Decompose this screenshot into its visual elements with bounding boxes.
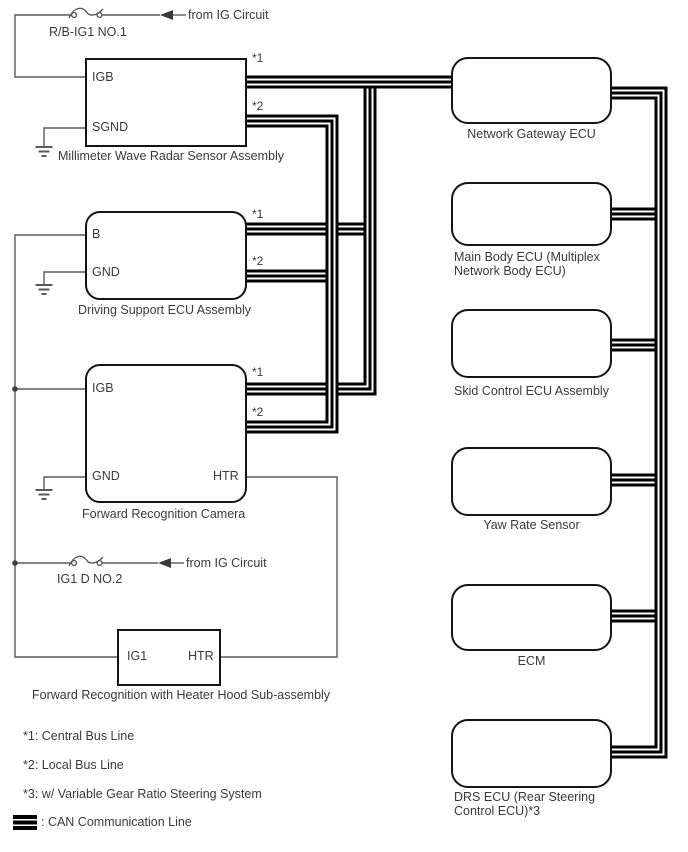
network-gateway-label: Network Gateway ECU <box>452 127 611 141</box>
fuse-icon-ig1-d <box>69 556 103 566</box>
main-body-ecu-box <box>452 183 611 245</box>
yaw-rate-box <box>452 448 611 515</box>
wiring-diagram: R/B-IG1 NO.1 from IG Circuit *1 *2 IGB S… <box>0 0 688 852</box>
main-body-label-line1: Main Body ECU (Multiplex <box>454 250 600 264</box>
drs-ecu-box <box>452 720 611 787</box>
dse-box <box>86 212 246 299</box>
radar-pin-igb: IGB <box>92 70 114 84</box>
camera-pin-gnd: GND <box>92 469 120 483</box>
skid-control-box <box>452 310 611 377</box>
hood-pin-htr: HTR <box>188 649 214 663</box>
radar-bus2-tag: *2 <box>252 99 263 113</box>
junction-dot <box>12 386 18 392</box>
drs-label-line2: Control ECU)*3 <box>454 804 540 818</box>
yaw-rate-label: Yaw Rate Sensor <box>452 518 611 532</box>
camera-bus2-tag: *2 <box>252 405 263 419</box>
dse-label: Driving Support ECU Assembly <box>78 303 251 317</box>
ground-icon-camera <box>36 490 53 499</box>
drs-label-line1: DRS ECU (Rear Steering <box>454 790 595 804</box>
dse-bus1-tag: *1 <box>252 207 263 221</box>
dse-bus2-tag: *2 <box>252 254 263 268</box>
main-body-label-line2: Network Body ECU) <box>454 264 566 278</box>
radar-bus1-tag: *1 <box>252 51 263 65</box>
fuse2-source-label: from IG Circuit <box>186 556 267 570</box>
camera-label: Forward Recognition Camera <box>82 507 245 521</box>
ecm-label: ECM <box>452 654 611 668</box>
fuse1-label: R/B-IG1 NO.1 <box>49 25 127 39</box>
fuse-icon-rb-ig1 <box>69 8 103 18</box>
junction-dot <box>12 560 18 566</box>
fuse1-source-label: from IG Circuit <box>188 8 269 22</box>
can-trunk-line <box>609 93 661 752</box>
camera-pin-htr: HTR <box>213 469 239 483</box>
legend-note-3: *3: w/ Variable Gear Ratio Steering Syst… <box>23 787 262 801</box>
radar-label: Millimeter Wave Radar Sensor Assembly <box>58 149 284 163</box>
arrow-icon-from-ig-2 <box>158 558 171 568</box>
legend-note-2: *2: Local Bus Line <box>23 758 124 772</box>
can-line-icon <box>13 815 37 830</box>
camera-pin-igb: IGB <box>92 381 114 395</box>
legend-can-label: : CAN Communication Line <box>41 815 192 829</box>
dse-pin-b: B <box>92 227 100 241</box>
skid-control-label: Skid Control ECU Assembly <box>452 384 611 398</box>
camera-bus1-tag: *1 <box>252 365 263 379</box>
ecm-box <box>452 585 611 650</box>
ground-icon-radar <box>36 147 53 156</box>
radar-pin-sgnd: SGND <box>92 120 128 134</box>
hood-label: Forward Recognition with Heater Hood Sub… <box>32 688 330 702</box>
hood-pin-ig1: IG1 <box>127 649 147 663</box>
arrow-icon-from-ig-1 <box>160 10 173 20</box>
network-gateway-box <box>452 58 611 123</box>
fuse2-label: IG1 D NO.2 <box>57 572 122 586</box>
dse-pin-gnd: GND <box>92 265 120 279</box>
legend-note-1: *1: Central Bus Line <box>23 729 134 743</box>
ground-icon-dse <box>36 285 53 294</box>
